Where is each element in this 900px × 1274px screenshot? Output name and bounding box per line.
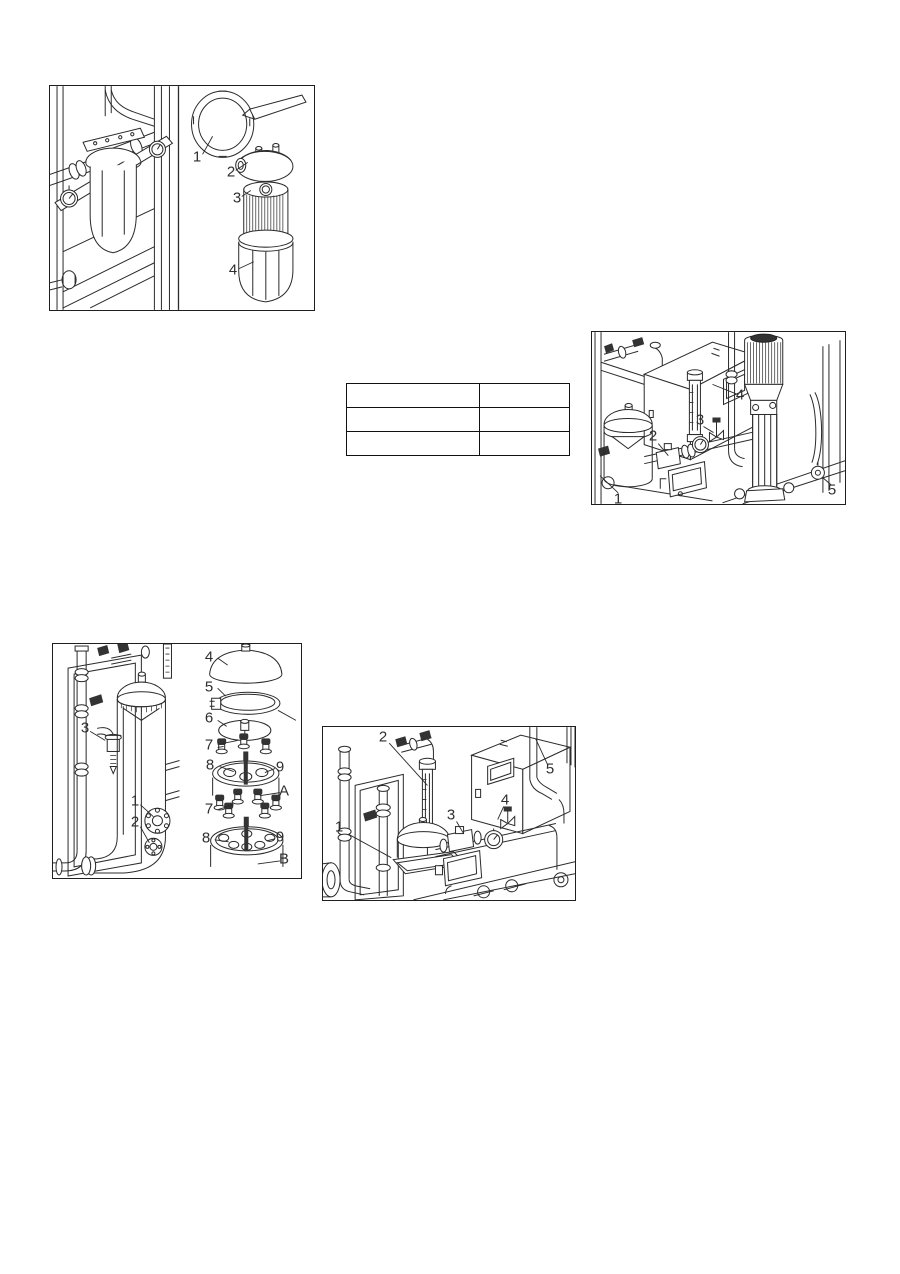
figure-vessel-exploded: 3 1 2 4 5 6 7 8 9 A 7 8 9 B: [52, 643, 302, 879]
table-cell: [480, 432, 570, 456]
callout: 6: [205, 711, 213, 726]
table-row: [347, 408, 570, 432]
callout: 1: [193, 150, 201, 165]
table-cell: [347, 408, 480, 432]
table-row: [347, 432, 570, 456]
callout: 2: [379, 730, 387, 745]
callout: 2: [649, 429, 657, 444]
table-cell: [480, 384, 570, 408]
callout: A: [279, 784, 289, 799]
figure-system-front: 1 2 3 4 5: [322, 726, 576, 901]
figure-filter-cartridge: 1 2 3 4: [49, 85, 315, 311]
callout: 3: [233, 191, 241, 206]
callout: 3: [696, 413, 704, 428]
callout: 1: [131, 794, 139, 809]
callout: 1: [335, 820, 343, 835]
callout: 7: [205, 802, 213, 817]
callout: 4: [205, 650, 213, 665]
callout: 2: [131, 815, 139, 830]
callout: 9: [276, 760, 284, 775]
callout: 3: [81, 721, 89, 736]
table-cell: [347, 432, 480, 456]
table-cell: [480, 408, 570, 432]
callout: 5: [205, 680, 213, 695]
callout: 3: [447, 808, 455, 823]
table-cell: [347, 384, 480, 408]
callout: 2: [227, 165, 235, 180]
vessel-exploded-illustration: [53, 644, 301, 878]
callout: 9: [276, 830, 284, 845]
callout: 4: [501, 793, 509, 808]
callout: B: [279, 852, 289, 867]
manual-page: 1 2 3 4: [0, 0, 900, 1274]
callout: 1: [614, 492, 622, 507]
filter-exploded-illustration: [50, 86, 314, 310]
pump-system-illustration: [592, 332, 845, 504]
callout: 4: [736, 388, 744, 403]
callout: 7: [205, 738, 213, 753]
callout: 4: [229, 263, 237, 278]
spec-table: [346, 383, 570, 456]
table-row: [347, 384, 570, 408]
callout: 8: [202, 831, 210, 846]
callout: 5: [828, 483, 836, 498]
callout: 8: [206, 758, 214, 773]
callout: 5: [546, 762, 554, 777]
figure-pump-overview: 1 2 3 4 5: [591, 331, 846, 505]
